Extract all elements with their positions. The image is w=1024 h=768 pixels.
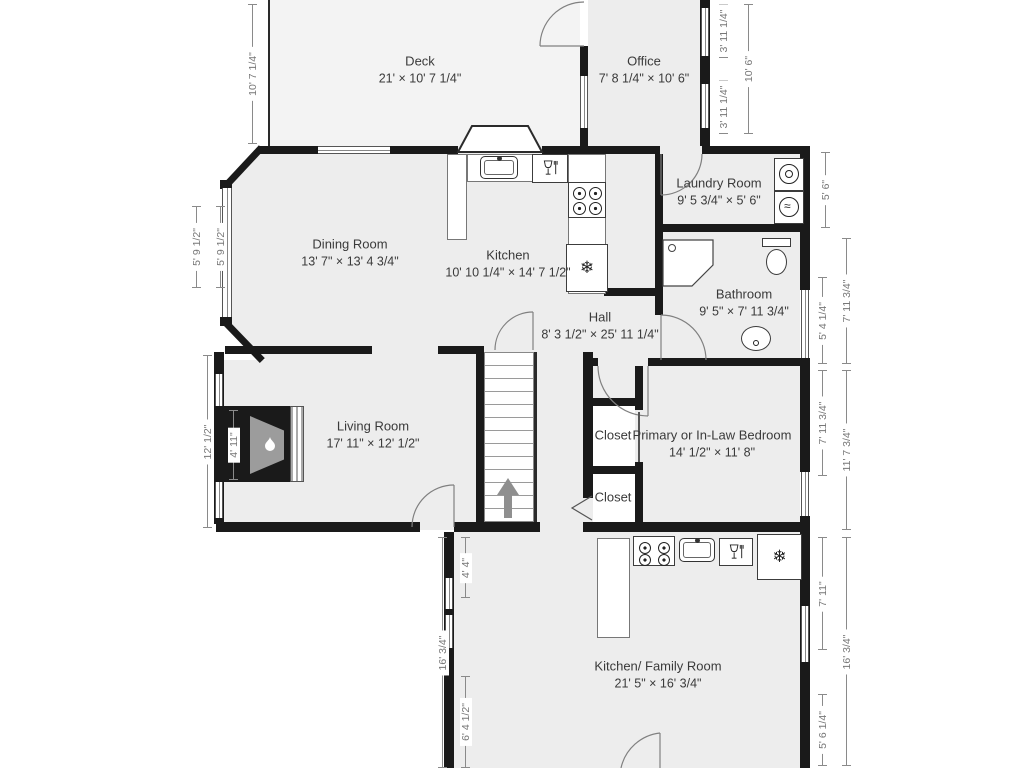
right-wall-3	[800, 516, 810, 532]
snowflake-glyph: ❄	[580, 258, 594, 278]
bedroom-left-wall-1	[635, 366, 643, 410]
floor-plan-canvas: ❄ ≈ ❄	[0, 0, 1024, 768]
family-dishwasher-icon	[719, 538, 753, 566]
dimension-13: 7' 11 3/4"	[846, 238, 847, 364]
stairs-up-arrow-head	[497, 478, 519, 495]
dimension-18: 5' 6 1/4"	[822, 694, 823, 766]
dimension-6: 4' 4"	[465, 537, 466, 598]
dimension-12: 5' 4 1/4"	[822, 277, 823, 364]
family-sink-icon	[679, 538, 715, 562]
room-label-primary-or-in-law-bedroom: Primary or In-Law Bedroom14' 1/2" × 11' …	[633, 427, 792, 460]
dimension-2: 5' 9 1/2"	[220, 206, 221, 288]
dimension-17: 16' 3/4"	[846, 537, 847, 766]
family-left-window-mullion	[445, 609, 453, 615]
bedroom-window	[801, 472, 809, 516]
dryer-icon: ≈	[774, 191, 804, 224]
dimension-1: 5' 9 1/2"	[196, 206, 197, 288]
office-right-window2	[701, 84, 709, 128]
bathroom-window	[801, 290, 809, 358]
room-label-bathroom: Bathroom9' 5" × 7' 11 3/4"	[699, 286, 789, 319]
dimension-4: 4' 11"	[233, 410, 234, 480]
closet-divider-wall	[583, 466, 643, 474]
dimension-5: 16' 3/4"	[442, 537, 443, 768]
office-left-wall2	[580, 128, 588, 146]
room-label-laundry-room: Laundry Room9' 5 3/4" × 5' 6"	[676, 175, 761, 208]
office-right-window1	[701, 8, 709, 56]
dimension-14: 7' 11 3/4"	[822, 370, 823, 476]
family-refrigerator-icon: ❄	[757, 534, 802, 580]
dimension-10: 10' 6"	[748, 4, 749, 134]
fireplace-hearth	[290, 406, 304, 482]
dimension-7: 6' 4 1/2"	[465, 676, 466, 768]
toilet-bowl	[766, 249, 787, 275]
right-wall-2	[800, 358, 810, 472]
room-label-deck: Deck21' × 10' 7 1/4"	[379, 53, 462, 86]
bottom-wall-1	[216, 522, 420, 532]
room-label-hall: Hall8' 3 1/2" × 25' 11 1/4"	[541, 309, 658, 342]
office-left-wall	[580, 46, 588, 76]
closet-top-wall	[583, 398, 643, 406]
refrigerator-icon: ❄	[566, 244, 608, 292]
bathroom-sink-icon	[741, 326, 771, 351]
dimension-11: 5' 6"	[825, 152, 826, 228]
stair-left-wall	[476, 352, 484, 524]
living-left-window2	[215, 482, 223, 518]
room-label-living-room: Living Room17' 11" × 12' 1/2"	[327, 418, 420, 451]
family-stove-icon	[633, 536, 675, 566]
bedroom-left-wall-2	[635, 462, 643, 524]
bath-bottom-wall-right	[648, 358, 808, 366]
kitchen-sink-icon	[480, 156, 518, 179]
room-label-office: Office7' 8 1/4" × 10' 6"	[599, 53, 689, 86]
bottom-wall-2	[454, 522, 540, 532]
stair-right-wall	[534, 352, 537, 522]
toilet-tank	[762, 238, 791, 247]
top-wall-window	[318, 146, 390, 154]
dimension-3: 12' 1/2"	[207, 355, 208, 528]
washer-icon	[774, 158, 804, 191]
bottom-wall-3	[583, 522, 808, 532]
dimension-16: 7' 11"	[822, 537, 823, 650]
kitchen-peninsula-counter	[447, 154, 467, 240]
top-wall-2	[390, 146, 458, 154]
laundry-bath-divider	[663, 224, 800, 232]
room-label-kitchen: Kitchen10' 10 1/4" × 14' 7 1/2"	[445, 247, 570, 280]
room-label-dining-room: Dining Room13' 7" × 13' 4 3/4"	[301, 236, 398, 269]
top-wall-1	[258, 146, 318, 154]
deck-rail	[268, 0, 270, 146]
family-counter-column	[597, 538, 630, 638]
dimension-8: 3' 11 1/4"	[723, 4, 724, 58]
dryer-glyph: ≈	[784, 199, 791, 213]
stairs-up-arrow-stem	[504, 494, 512, 518]
snowflake-glyph: ❄	[772, 547, 786, 567]
dining-living-wall-1	[225, 346, 372, 354]
dimension-0: 10' 7 1/4"	[252, 4, 253, 144]
dimension-15: 11' 7 3/4"	[846, 370, 847, 530]
dishwasher-icon	[532, 154, 568, 183]
living-left-window1	[215, 374, 223, 410]
top-wall-3	[542, 146, 660, 154]
kitchen-corner-wall	[604, 288, 663, 296]
top-wall-4	[702, 146, 808, 154]
office-left-window	[580, 76, 588, 128]
room-label-closet: Closet	[595, 428, 632, 445]
dimension-9: 3' 11 1/4"	[723, 80, 724, 134]
stove-icon	[568, 182, 606, 218]
room-label-kitchen-family-room: Kitchen/ Family Room21' 5" × 16' 3/4"	[594, 658, 721, 691]
room-label-closet: Closet	[595, 490, 632, 507]
family-right-window	[801, 606, 809, 662]
closet-left-wall	[583, 352, 593, 498]
